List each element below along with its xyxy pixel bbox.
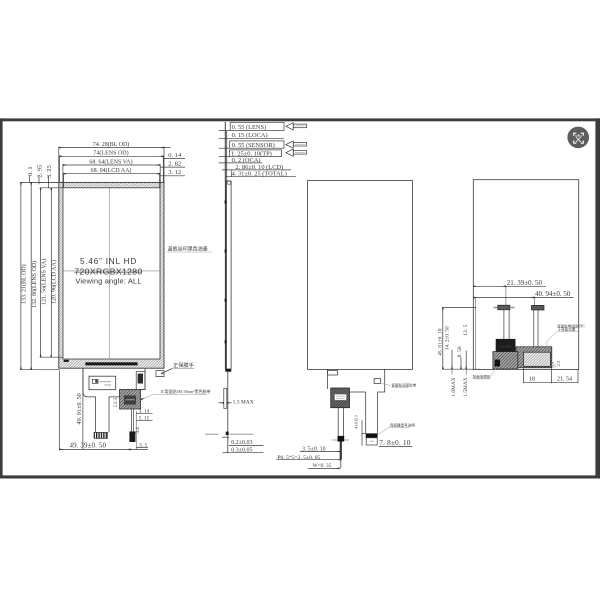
svg-text:68. 04(LCD AA): 68. 04(LCD AA) [91,167,132,174]
svg-text:盖板丝印黑色油墨: 盖板丝印黑色油墨 [168,246,208,253]
svg-text:21. 54: 21. 54 [557,377,572,383]
svg-text:3. 14: 3. 14 [139,408,150,414]
svg-text:正保膜手: 正保膜手 [173,361,194,369]
svg-text:49. 91±0. 50: 49. 91±0. 50 [76,393,83,424]
svg-text:1.5MAX: 1.5MAX [463,377,469,396]
svg-text:13. 5: 13. 5 [463,324,469,335]
svg-text:1.0MAX: 1.0MAX [451,377,457,396]
svg-text:49. 39±0. 50: 49. 39±0. 50 [70,442,107,450]
svg-text:121. 56(LENS VA): 121. 56(LENS VA) [41,259,48,305]
svg-text:7. 8±0. 10: 7. 8±0. 10 [379,438,411,447]
svg-text:14. 2±0. 50: 14. 2±0. 50 [445,326,451,350]
svg-text:0. 14: 0. 14 [168,152,182,159]
svg-text:背面泡棉胶: 背面泡棉胶 [473,374,491,379]
svg-text:6A9B: 6A9B [500,344,511,349]
svg-text:40. 94±0. 50: 40. 94±0. 50 [535,290,571,298]
svg-text:3. 25: 3. 25 [46,165,53,178]
svg-text:0. 2 (OCA): 0. 2 (OCA) [232,157,261,164]
svg-text:5.46” INL HD: 5.46” INL HD [80,257,137,266]
svg-text:3.4: 3.4 [136,427,141,434]
svg-text:0. 15 (LOCA): 0. 15 (LOCA) [232,132,268,139]
svg-text:0. 55 (LENS): 0. 55 (LENS) [232,124,267,131]
svg-text:2. 95: 2. 95 [36,165,43,178]
svg-text:3. 12: 3. 12 [168,169,181,176]
svg-text:连接器型号说明: 连接器型号说明 [390,422,416,427]
svg-text:2. 82: 2. 82 [168,161,181,168]
svg-text:13.3: 13.3 [113,398,119,408]
svg-text:1.3 MAX: 1.3 MAX [233,399,254,405]
svg-text:74. 28(BL OD): 74. 28(BL OD) [93,141,130,148]
svg-text:5. 15: 5. 15 [139,415,150,421]
svg-text:背面贴双面胶带: 背面贴双面胶带 [391,382,417,387]
svg-text:68. 64(LENS VA): 68. 64(LENS VA) [89,158,132,165]
svg-text:0. 1: 0. 1 [27,166,34,176]
svg-text:120. 96(LCD AA): 120. 96(LCD AA) [51,260,58,304]
svg-text:132. 86(LENS OD): 132. 86(LENS OD) [31,261,38,308]
svg-text:2.2: 2.2 [556,361,561,367]
svg-text:74(LENS OD): 74(LENS OD) [93,150,128,157]
svg-text:0.3: 0.3 [354,415,359,420]
svg-text:133. 21(BL OD): 133. 21(BL OD) [21,264,28,304]
svg-text:IC背面贴3M 10mm²黑色胶带: IC背面贴3M 10mm²黑色胶带 [161,388,211,394]
svg-text:18: 18 [529,377,535,383]
svg-text:720XRGBX1280: 720XRGBX1280 [74,267,142,277]
svg-text:8. 58: 8. 58 [457,346,463,357]
svg-text:3. 5: 3. 5 [139,442,148,448]
svg-text:45. 01±0. 10: 45. 01±0. 10 [437,328,443,356]
svg-text:于背面位置: 于背面位置 [558,327,576,332]
svg-text:Viewing angle: ALL: Viewing angle: ALL [75,277,141,286]
svg-text:4. 31±0. 25 (TOTAL): 4. 31±0. 25 (TOTAL) [232,171,287,178]
svg-text:0. 55 (SENSOR): 0. 55 (SENSOR) [232,142,275,149]
svg-text:21. 39±0. 50: 21. 39±0. 50 [507,279,543,287]
